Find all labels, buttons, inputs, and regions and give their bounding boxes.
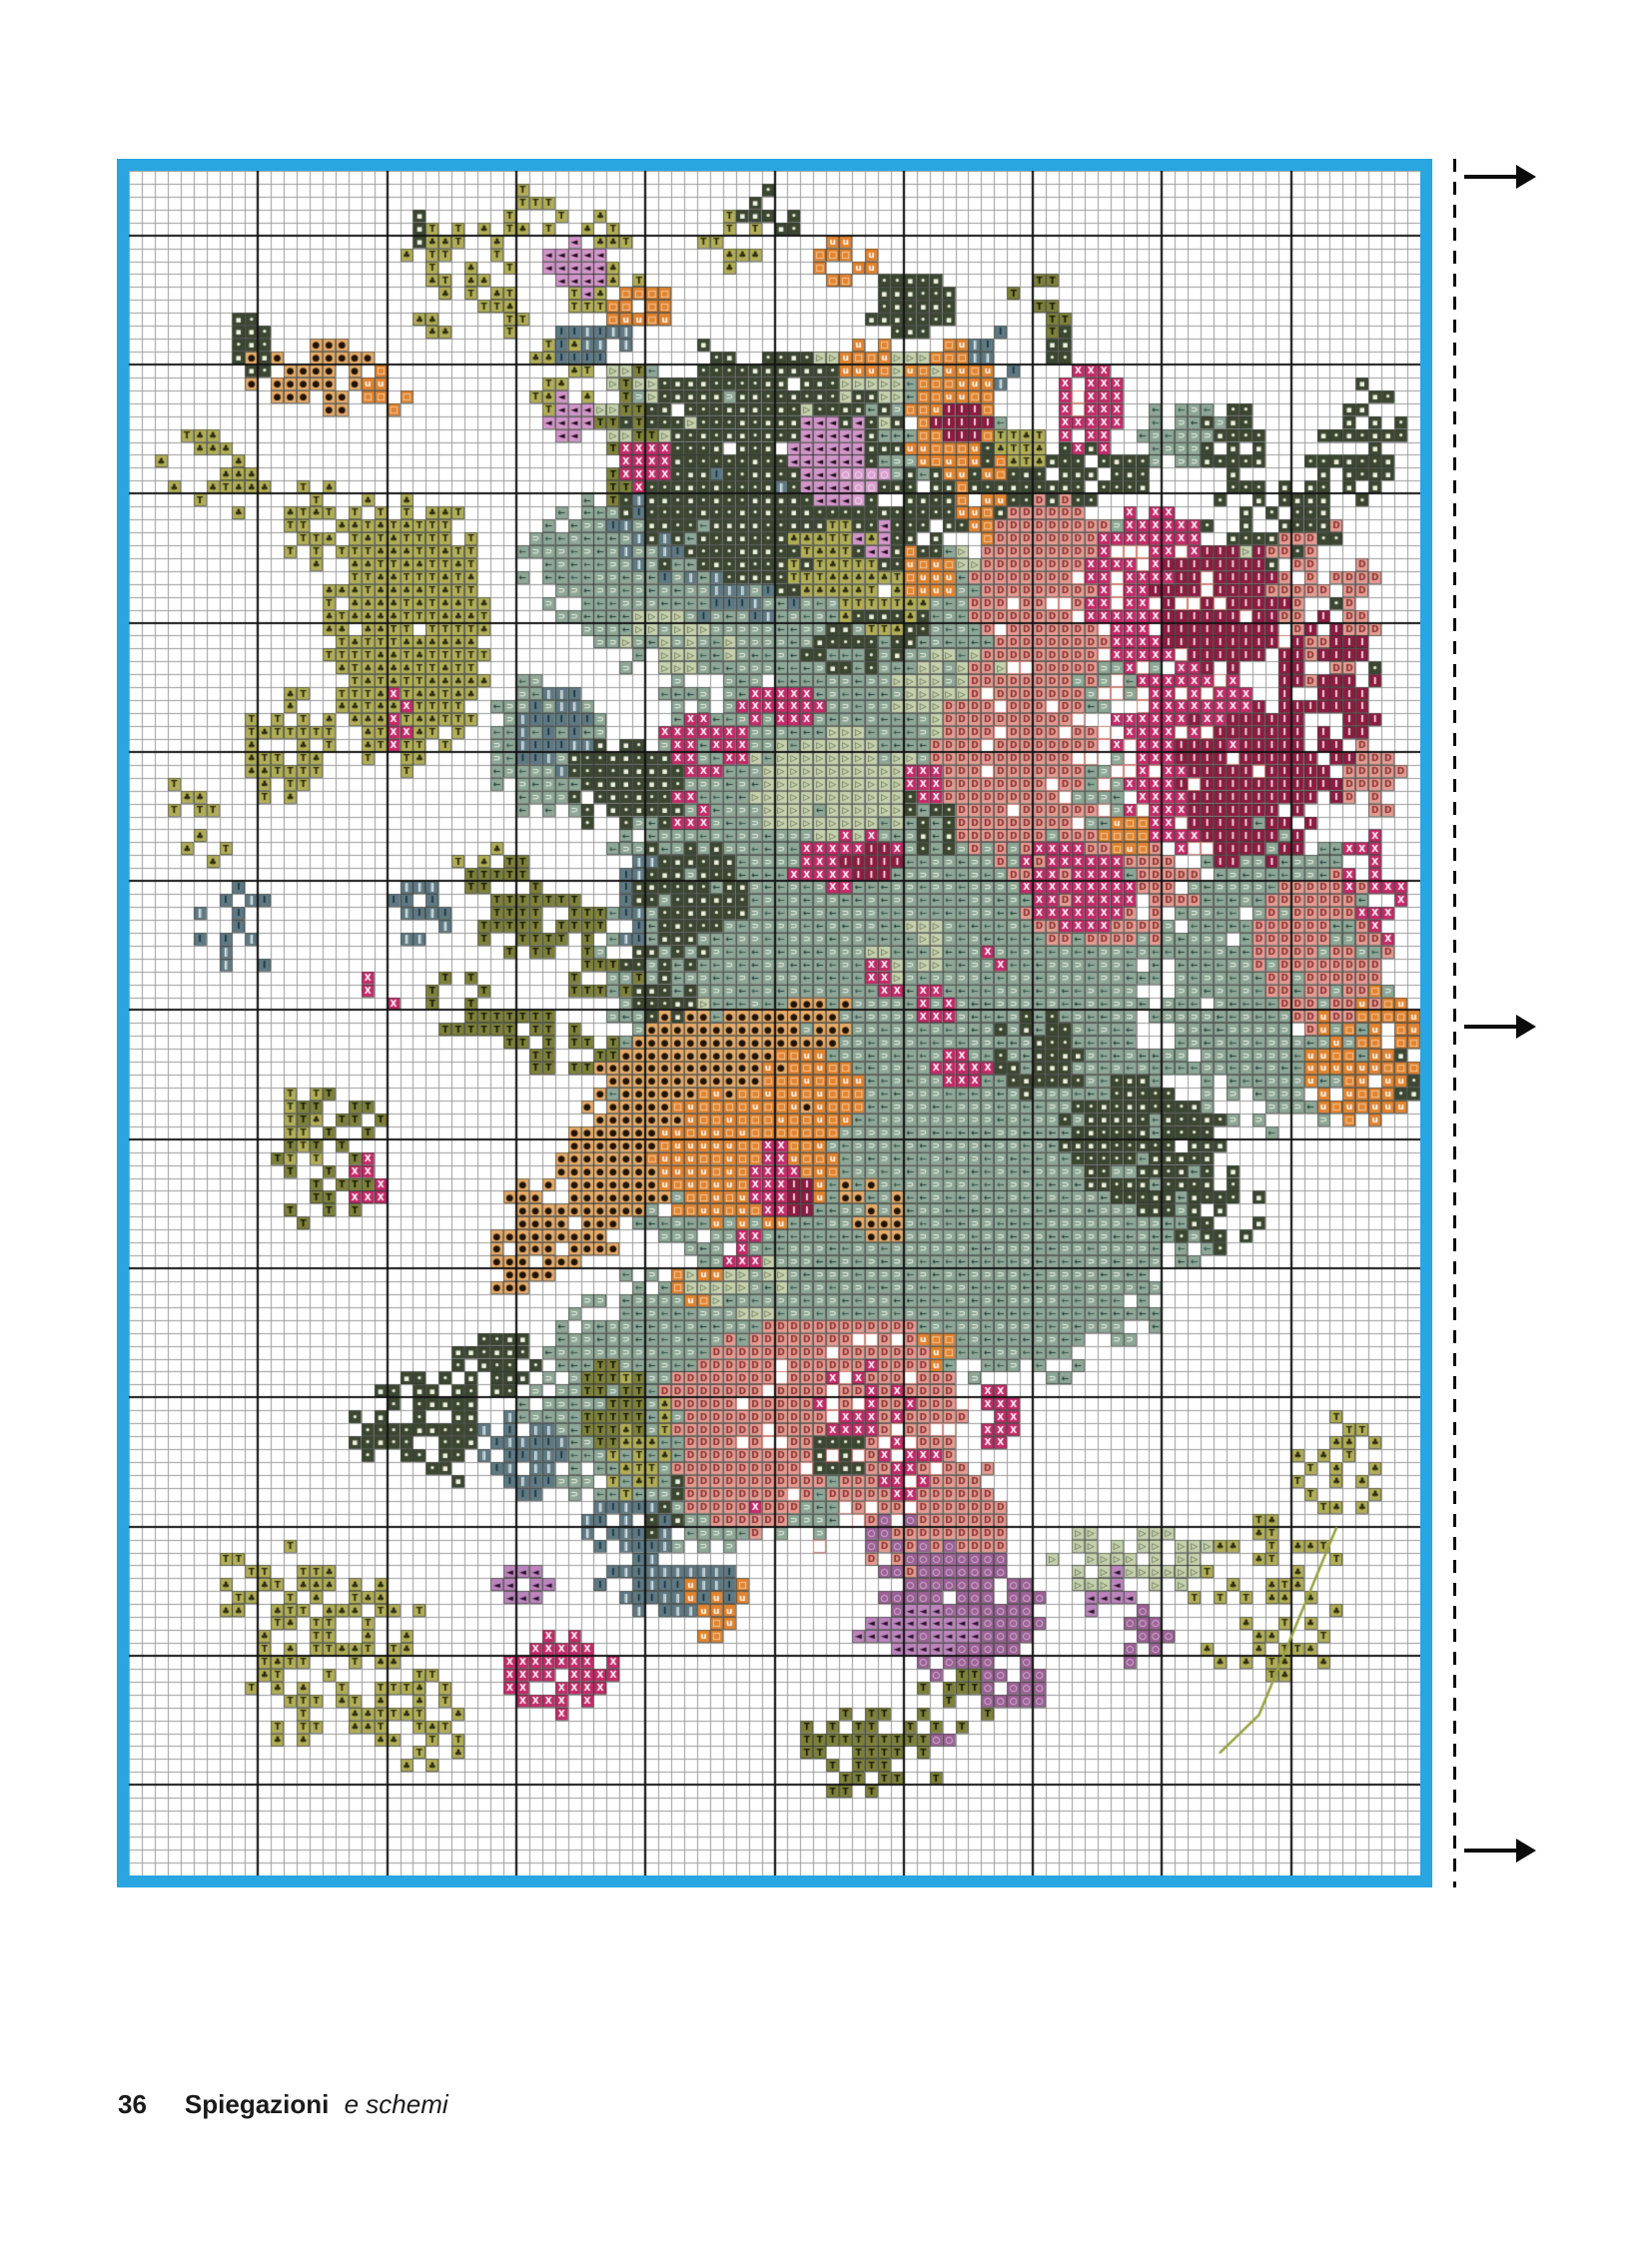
magazine-page: 36Spiegazioni e schemi	[0, 0, 1652, 2241]
arrow-head-icon	[1516, 1839, 1536, 1863]
cross-stitch-chart	[129, 171, 1420, 1875]
pattern-continuation-arrow-top	[1464, 165, 1536, 189]
pattern-frame	[117, 159, 1432, 1887]
arrow-shaft	[1464, 1025, 1516, 1029]
section-title: Spiegazioni	[185, 2089, 329, 2119]
arrow-head-icon	[1516, 165, 1536, 189]
page-number: 36	[118, 2089, 147, 2119]
arrow-shaft	[1464, 1849, 1516, 1853]
pattern-continuation-arrow-middle	[1464, 1015, 1536, 1039]
section-subtitle: e schemi	[345, 2089, 448, 2119]
page-footer: 36Spiegazioni e schemi	[118, 2089, 448, 2120]
pattern-edge-dashed-line	[1453, 159, 1456, 1887]
arrow-shaft	[1464, 175, 1516, 179]
arrow-head-icon	[1516, 1015, 1536, 1039]
pattern-continuation-arrow-bottom	[1464, 1839, 1536, 1863]
